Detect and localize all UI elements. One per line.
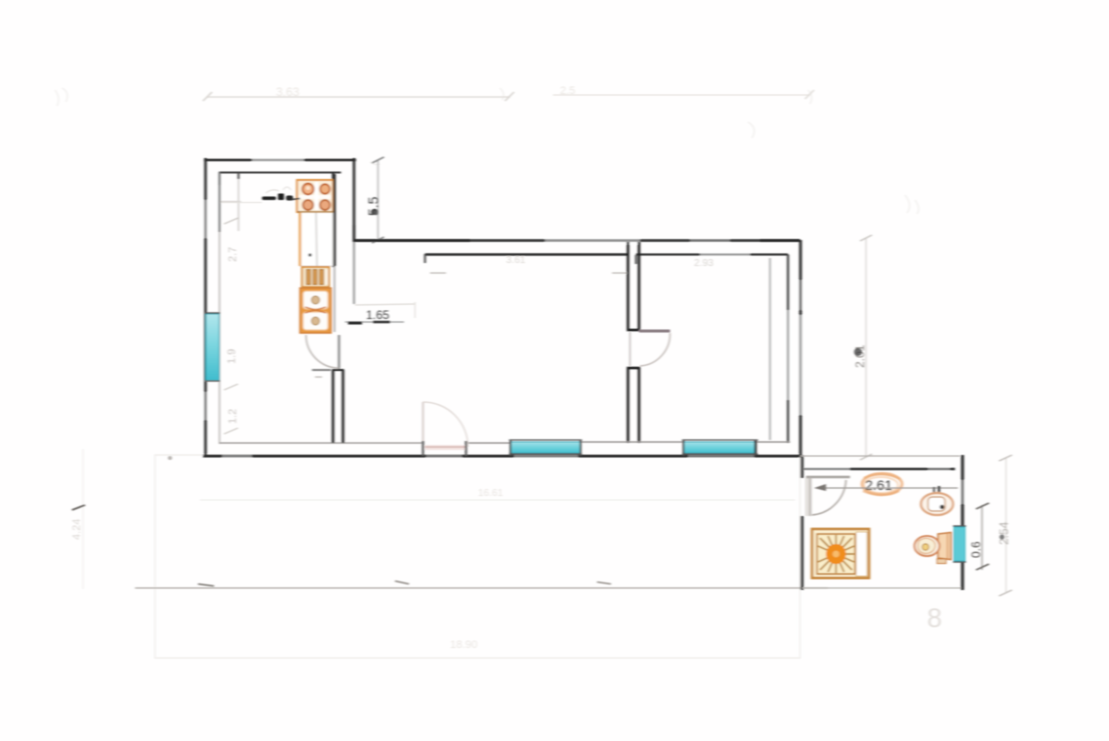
svg-text:1.65: 1.65 <box>366 308 390 322</box>
svg-text:2.54: 2.54 <box>997 521 1011 545</box>
svg-text:2.93: 2.93 <box>694 258 714 269</box>
svg-text:3.61: 3.61 <box>506 255 526 266</box>
svg-text:1.9: 1.9 <box>226 349 238 364</box>
svg-text:8: 8 <box>927 603 942 633</box>
svg-text:18.90: 18.90 <box>450 639 478 651</box>
svg-text:2.01: 2.01 <box>853 344 867 368</box>
svg-text:1.2: 1.2 <box>227 409 239 424</box>
svg-text:0.6: 0.6 <box>969 541 983 558</box>
svg-text:4.24: 4.24 <box>71 519 83 540</box>
svg-text:2.61: 2.61 <box>865 477 892 493</box>
svg-text:16.61: 16.61 <box>478 488 503 499</box>
svg-text:2.5: 2.5 <box>560 85 575 97</box>
svg-text:3.63: 3.63 <box>276 85 300 99</box>
svg-text:2.7: 2.7 <box>227 247 239 262</box>
